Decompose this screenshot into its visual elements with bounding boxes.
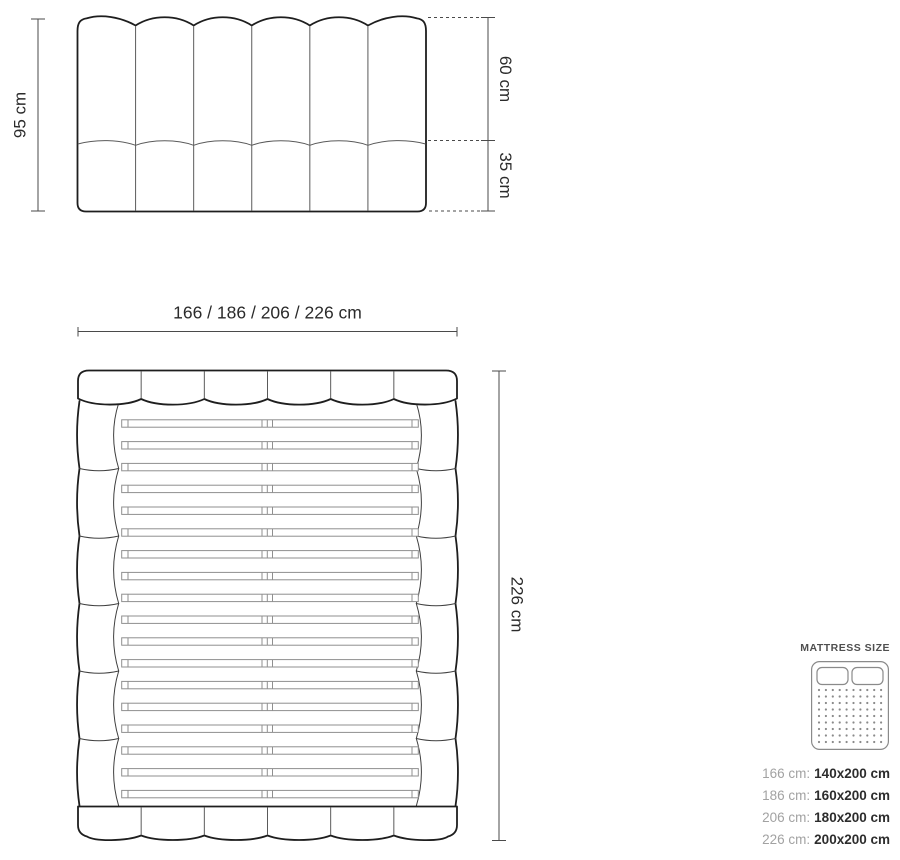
mattress-size-value: 140x200 cm [814,766,890,781]
length-dimension: 226 cm [492,371,527,841]
bed-dimensions-diagram: 95 cm 60 cm 35 cm 166 / 18 [0,0,900,860]
pillow-right-icon [852,668,883,685]
frame-width-label: 226 cm: [762,832,810,847]
width-label: 166 / 186 / 206 / 226 cm [173,303,362,323]
mattress-size-value: 200x200 cm [814,832,890,847]
headboard-split-dimension: 60 cm 35 cm [428,18,515,212]
height-label: 95 cm [11,92,30,138]
pillow-left-icon [817,668,848,685]
frame-width-label: 186 cm: [762,788,810,803]
mattress-size-row: 226 cm:200x200 cm [762,829,890,851]
frame-width-label: 206 cm: [762,810,810,825]
mattress-size-value: 180x200 cm [814,810,890,825]
side-rails [77,401,458,806]
mattress-icon [811,661,889,750]
bed-top-view: 166 / 186 / 206 / 226 cm [77,303,526,841]
mattress-size-value: 160x200 cm [814,788,890,803]
mattress-size-row: 186 cm:160x200 cm [762,785,890,807]
mattress-size-title: MATTRESS SIZE [800,642,890,654]
mattress-size-list: 166 cm:140x200 cm 186 cm:160x200 cm 206 … [762,763,890,851]
diagram-canvas: 95 cm 60 cm 35 cm 166 / 18 [0,0,900,860]
headboard-front-view: 95 cm 60 cm 35 cm [11,16,516,211]
mattress-size-row: 206 cm:180x200 cm [762,807,890,829]
mattress-dots [818,689,882,743]
lower-height-label: 35 cm [496,152,515,198]
mattress-size-row: 166 cm:140x200 cm [762,763,890,785]
length-label: 226 cm [508,577,527,633]
slatted-base [122,420,419,798]
frame-width-label: 166 cm: [762,766,810,781]
mattress-outline [812,662,889,750]
width-dimension: 166 / 186 / 206 / 226 cm [78,303,457,337]
upper-height-label: 60 cm [496,56,515,102]
height-dimension: 95 cm [11,19,46,211]
